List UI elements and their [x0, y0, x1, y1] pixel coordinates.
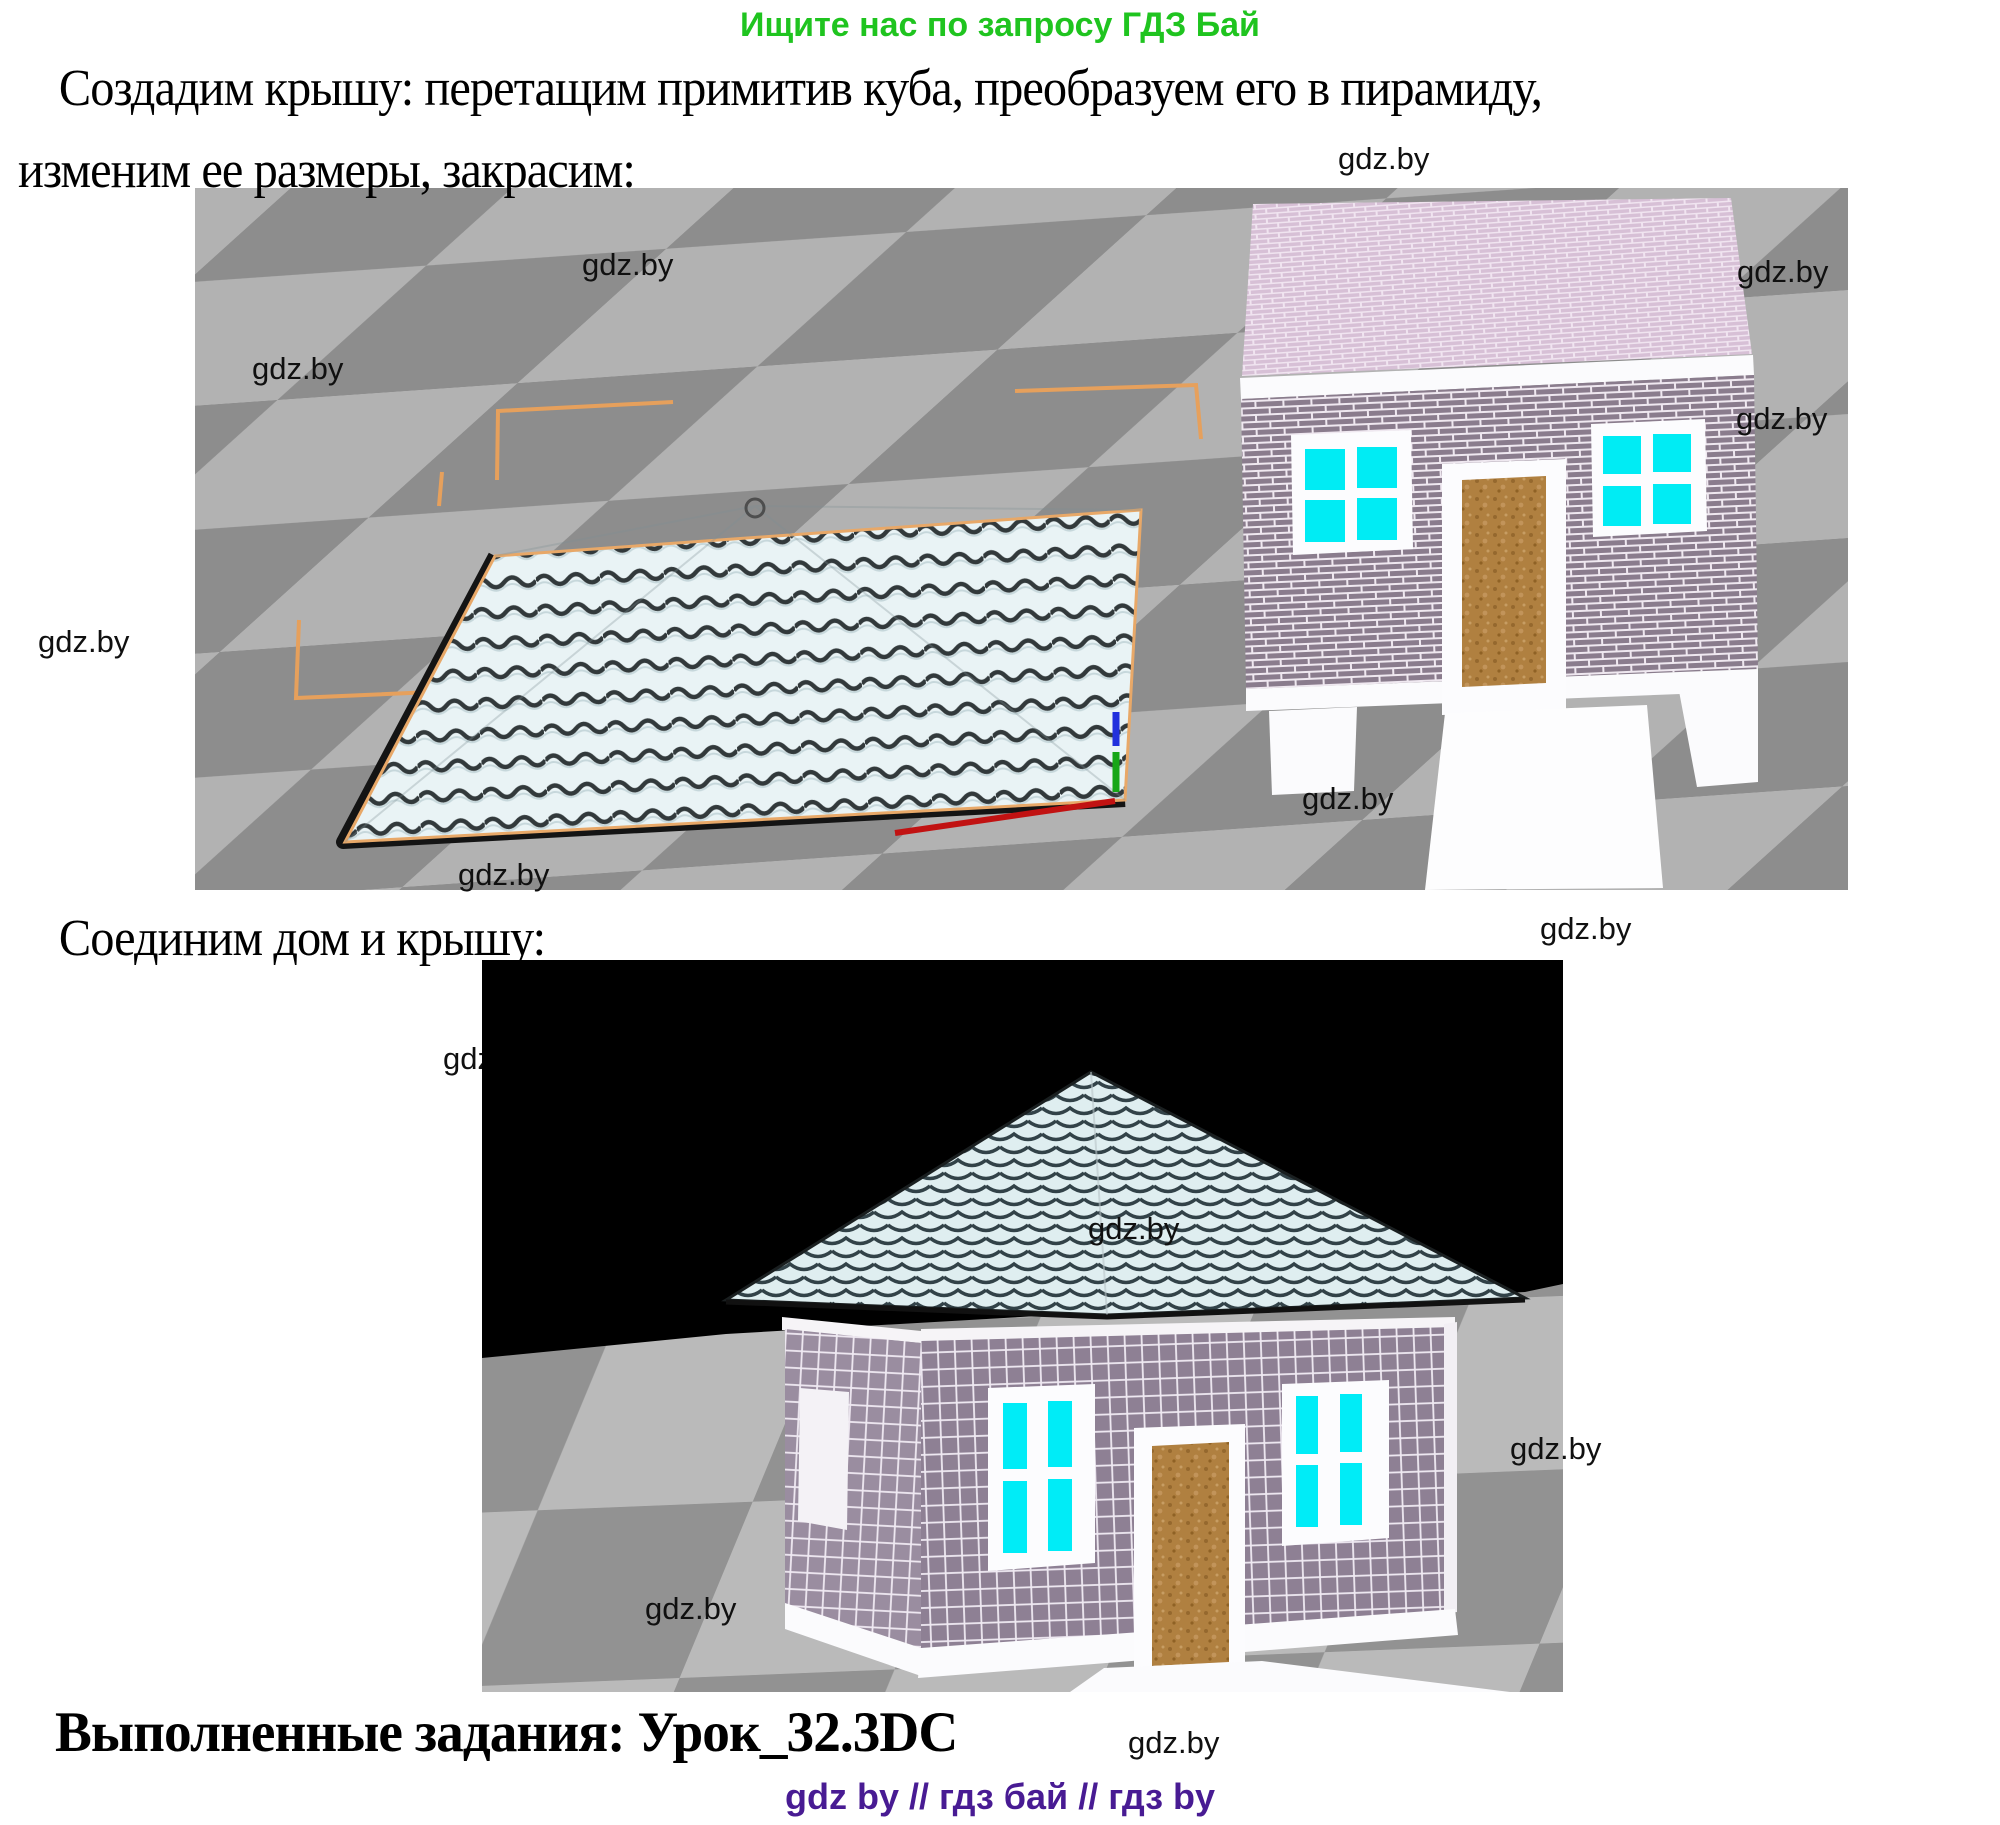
- gdz-watermark: gdz.by: [1736, 402, 1827, 436]
- gdz-watermark: gdz.by: [582, 248, 673, 282]
- footer-links: gdz by // гдз бай // гдз by: [0, 1772, 2000, 1822]
- gdz-watermark: gdz.by: [38, 625, 129, 659]
- instruction-step2: Соединим дом и крышу:: [18, 898, 545, 980]
- instruction-step1: Создадим крышу: перетащим примитив куба,…: [18, 48, 1542, 212]
- text-layer: Ищите нас по запросу ГДЗ Бай Создадим кр…: [0, 0, 2000, 1825]
- gdz-watermark: gdz.by: [1088, 1212, 1179, 1246]
- gdz-watermark: gdz.by: [1338, 142, 1429, 176]
- page: { "header": { "promo": "Ищите нас по зап…: [0, 0, 2000, 1825]
- gdz-watermark: gdz.by: [645, 1592, 736, 1626]
- gdz-watermark: gdz.by: [1302, 782, 1393, 816]
- instruction-step1-line2: изменим ее размеры, закрасим:: [18, 142, 635, 199]
- gdz-watermark: gdz.by: [252, 352, 343, 386]
- instruction-step1-line1: Создадим крышу: перетащим примитив куба,…: [18, 48, 1542, 130]
- gdz-watermark: gdz.by: [1510, 1432, 1601, 1466]
- gdz-watermark: gdz.by: [1128, 1726, 1219, 1760]
- completed-tasks-heading: Выполненные задания: Урок_32.3DC: [55, 1700, 957, 1765]
- promo-banner: Ищите нас по запросу ГДЗ Бай: [0, 2, 2000, 48]
- gdz-watermark: gdz.by: [458, 858, 549, 892]
- instruction-step2-text: Соединим дом и крышу:: [18, 898, 545, 980]
- gdz-watermark: gdz.by: [1540, 912, 1631, 946]
- gdz-watermark: gdz.by: [1737, 255, 1828, 289]
